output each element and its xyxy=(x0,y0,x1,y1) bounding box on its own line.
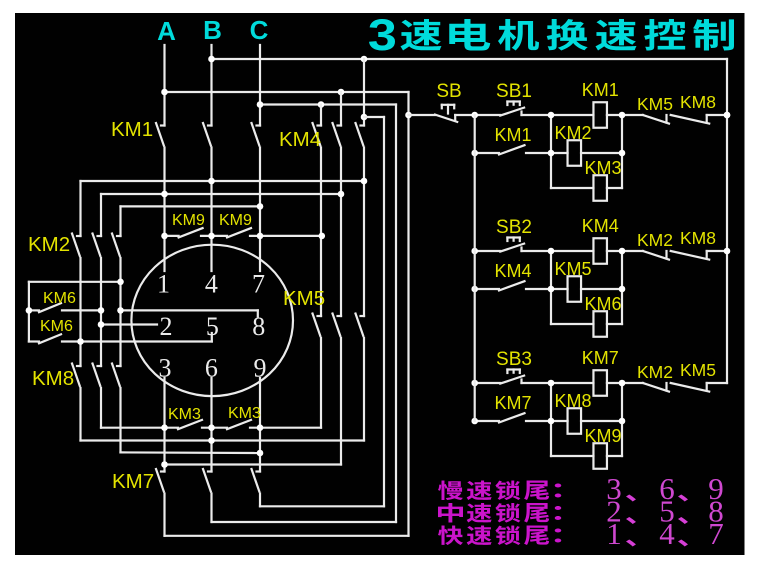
svg-text:KM3: KM3 xyxy=(168,406,201,423)
svg-text:KM7: KM7 xyxy=(112,470,154,493)
svg-text:8: 8 xyxy=(252,312,265,341)
svg-text:KM6: KM6 xyxy=(43,290,76,307)
svg-text:KM1: KM1 xyxy=(494,125,531,145)
svg-text:KM6: KM6 xyxy=(40,318,73,335)
svg-text:C: C xyxy=(250,15,269,45)
svg-text:KM5: KM5 xyxy=(637,94,673,114)
svg-text:KM3: KM3 xyxy=(228,405,261,422)
svg-text:KM2: KM2 xyxy=(637,362,673,382)
svg-text:KM5: KM5 xyxy=(680,360,716,380)
svg-text:KM8: KM8 xyxy=(680,92,716,112)
svg-text:KM2: KM2 xyxy=(637,230,673,250)
svg-text:5: 5 xyxy=(206,312,219,341)
svg-text:KM4: KM4 xyxy=(494,261,531,281)
svg-text:KM3: KM3 xyxy=(584,158,621,178)
svg-text:KM7: KM7 xyxy=(494,393,531,413)
svg-text:KM9: KM9 xyxy=(584,426,621,446)
svg-text:7: 7 xyxy=(252,269,265,298)
svg-text:KM2: KM2 xyxy=(554,123,591,143)
svg-text:KM6: KM6 xyxy=(584,294,621,314)
svg-text:3: 3 xyxy=(159,354,172,383)
svg-text:KM5: KM5 xyxy=(554,259,591,279)
svg-text:KM2: KM2 xyxy=(28,233,70,256)
svg-text:KM1: KM1 xyxy=(582,80,619,100)
svg-text:SB: SB xyxy=(436,81,461,102)
svg-text:KM4: KM4 xyxy=(582,216,619,236)
svg-text:B: B xyxy=(203,15,222,45)
svg-text:KM8: KM8 xyxy=(680,228,716,248)
svg-text:KM7: KM7 xyxy=(582,348,619,368)
svg-text:SB1: SB1 xyxy=(496,81,532,102)
svg-text:1: 1 xyxy=(606,516,622,551)
svg-text:SB3: SB3 xyxy=(496,349,532,370)
svg-text:9: 9 xyxy=(254,354,267,383)
svg-text:KM8: KM8 xyxy=(32,367,74,390)
svg-text:KM9: KM9 xyxy=(172,212,205,229)
svg-text:4: 4 xyxy=(659,516,675,551)
svg-text:2: 2 xyxy=(160,312,173,341)
svg-text:KM4: KM4 xyxy=(279,128,321,151)
svg-text:KM1: KM1 xyxy=(111,118,153,141)
svg-text:KM9: KM9 xyxy=(219,212,252,229)
svg-text:1: 1 xyxy=(157,269,170,298)
svg-text:SB2: SB2 xyxy=(496,217,532,238)
svg-text:7: 7 xyxy=(708,516,724,551)
svg-text:KM8: KM8 xyxy=(554,391,591,411)
svg-text:4: 4 xyxy=(205,269,218,298)
svg-text:6: 6 xyxy=(205,354,218,383)
svg-text:KM5: KM5 xyxy=(283,287,325,310)
svg-text:A: A xyxy=(157,16,176,46)
